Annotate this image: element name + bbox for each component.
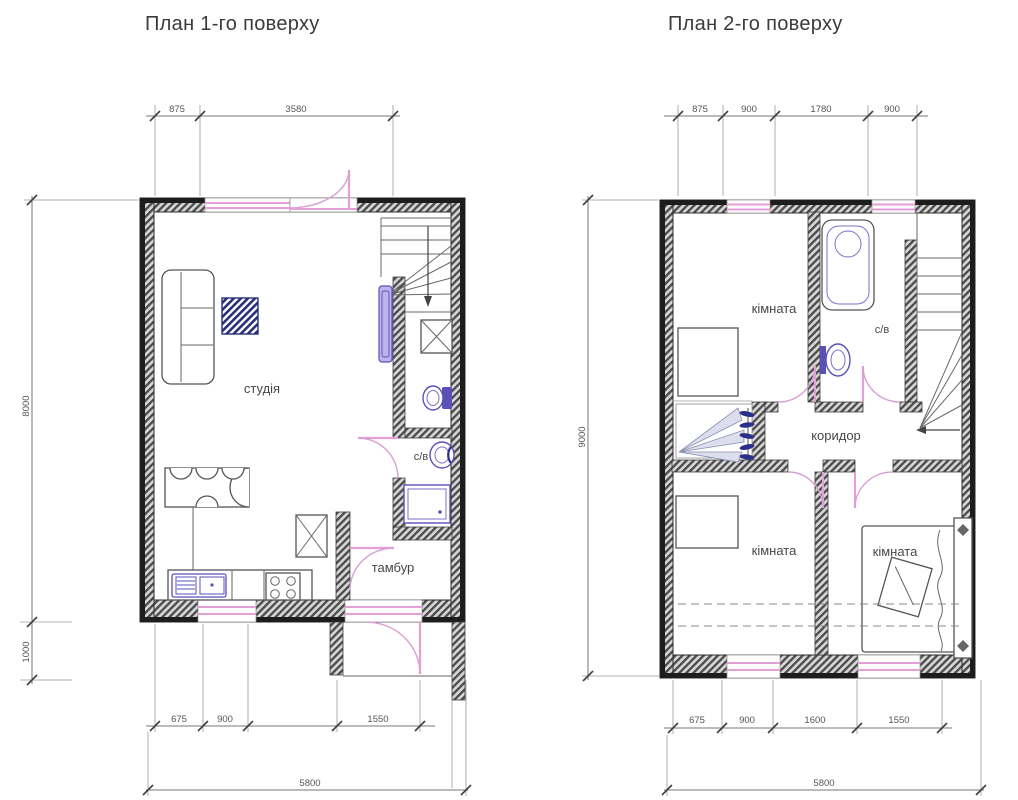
dim2-bottom-2: 900 (739, 715, 755, 726)
room-label-bedroom3: кімната (873, 544, 918, 559)
floor-plan-sheet: План 1-го поверху План 2-го поверху (0, 0, 1018, 800)
plan-drawing: студія с/в тамбур 875 3580 (0, 0, 1018, 800)
sofa (162, 270, 214, 384)
wardrobe-bottom-left-room (676, 496, 738, 548)
stair-direction-arrow-floor2 (916, 426, 960, 434)
dim2-top-1: 875 (692, 104, 708, 115)
dim-bottom-3: 1550 (367, 714, 388, 725)
dim-bottom-2: 900 (217, 714, 233, 725)
room-label-studio: студія (244, 381, 280, 396)
bathtub-icon (822, 220, 874, 310)
dim2-left-1: 9000 (577, 426, 588, 447)
floor2-plan: кімната с/в коридор кімната кімната 875 (577, 104, 986, 796)
room-label-corridor: коридор (811, 428, 861, 443)
floor2-stairs (916, 212, 962, 434)
floor1-windows (198, 198, 422, 622)
room-label-tambour: тамбур (372, 560, 415, 575)
floor1-outer-walls (140, 198, 465, 622)
dim2-bottom-1: 675 (689, 715, 705, 726)
room-label-bedroom1: кімната (752, 301, 797, 316)
dim-top-2: 3580 (285, 104, 306, 115)
dim-left-1: 8000 (21, 395, 32, 416)
room-label-bath1: с/в (414, 451, 429, 463)
dim-total-floor2: 5800 (813, 778, 834, 789)
floor1-plan: студія с/в тамбур 875 3580 (20, 104, 471, 796)
dim2-top-2: 900 (741, 104, 757, 115)
floor1-understair-closet-x (421, 320, 452, 353)
washbasin-icon-floor2 (820, 344, 850, 376)
room-label-bath2: с/в (875, 324, 890, 336)
dining-table (165, 468, 249, 507)
dim2-bottom-3: 1600 (804, 715, 825, 726)
floor1-entry-door (289, 170, 357, 212)
wardrobe-top-left-room (678, 328, 738, 396)
stove-icon (266, 573, 300, 600)
shower-tray (404, 485, 450, 523)
floor1-interior-doors (350, 438, 420, 674)
dim-top-1: 875 (169, 104, 185, 115)
toilet-icon (423, 386, 452, 410)
dim2-top-3: 1780 (810, 104, 831, 115)
bed (862, 518, 972, 658)
washbasin-icon-floor1 (430, 442, 454, 468)
dim2-top-4: 900 (884, 104, 900, 115)
closet-hangers (676, 404, 755, 462)
room-label-bedroom2: кімната (752, 543, 797, 558)
dim-left-2: 1000 (21, 641, 32, 662)
dim2-bottom-4: 1550 (888, 715, 909, 726)
kitchen-closet-x (296, 515, 327, 557)
tv-unit (222, 298, 258, 334)
dim-bottom-1: 675 (171, 714, 187, 725)
floor1-radiator (379, 286, 392, 362)
dim-total-floor1: 5800 (299, 778, 320, 789)
